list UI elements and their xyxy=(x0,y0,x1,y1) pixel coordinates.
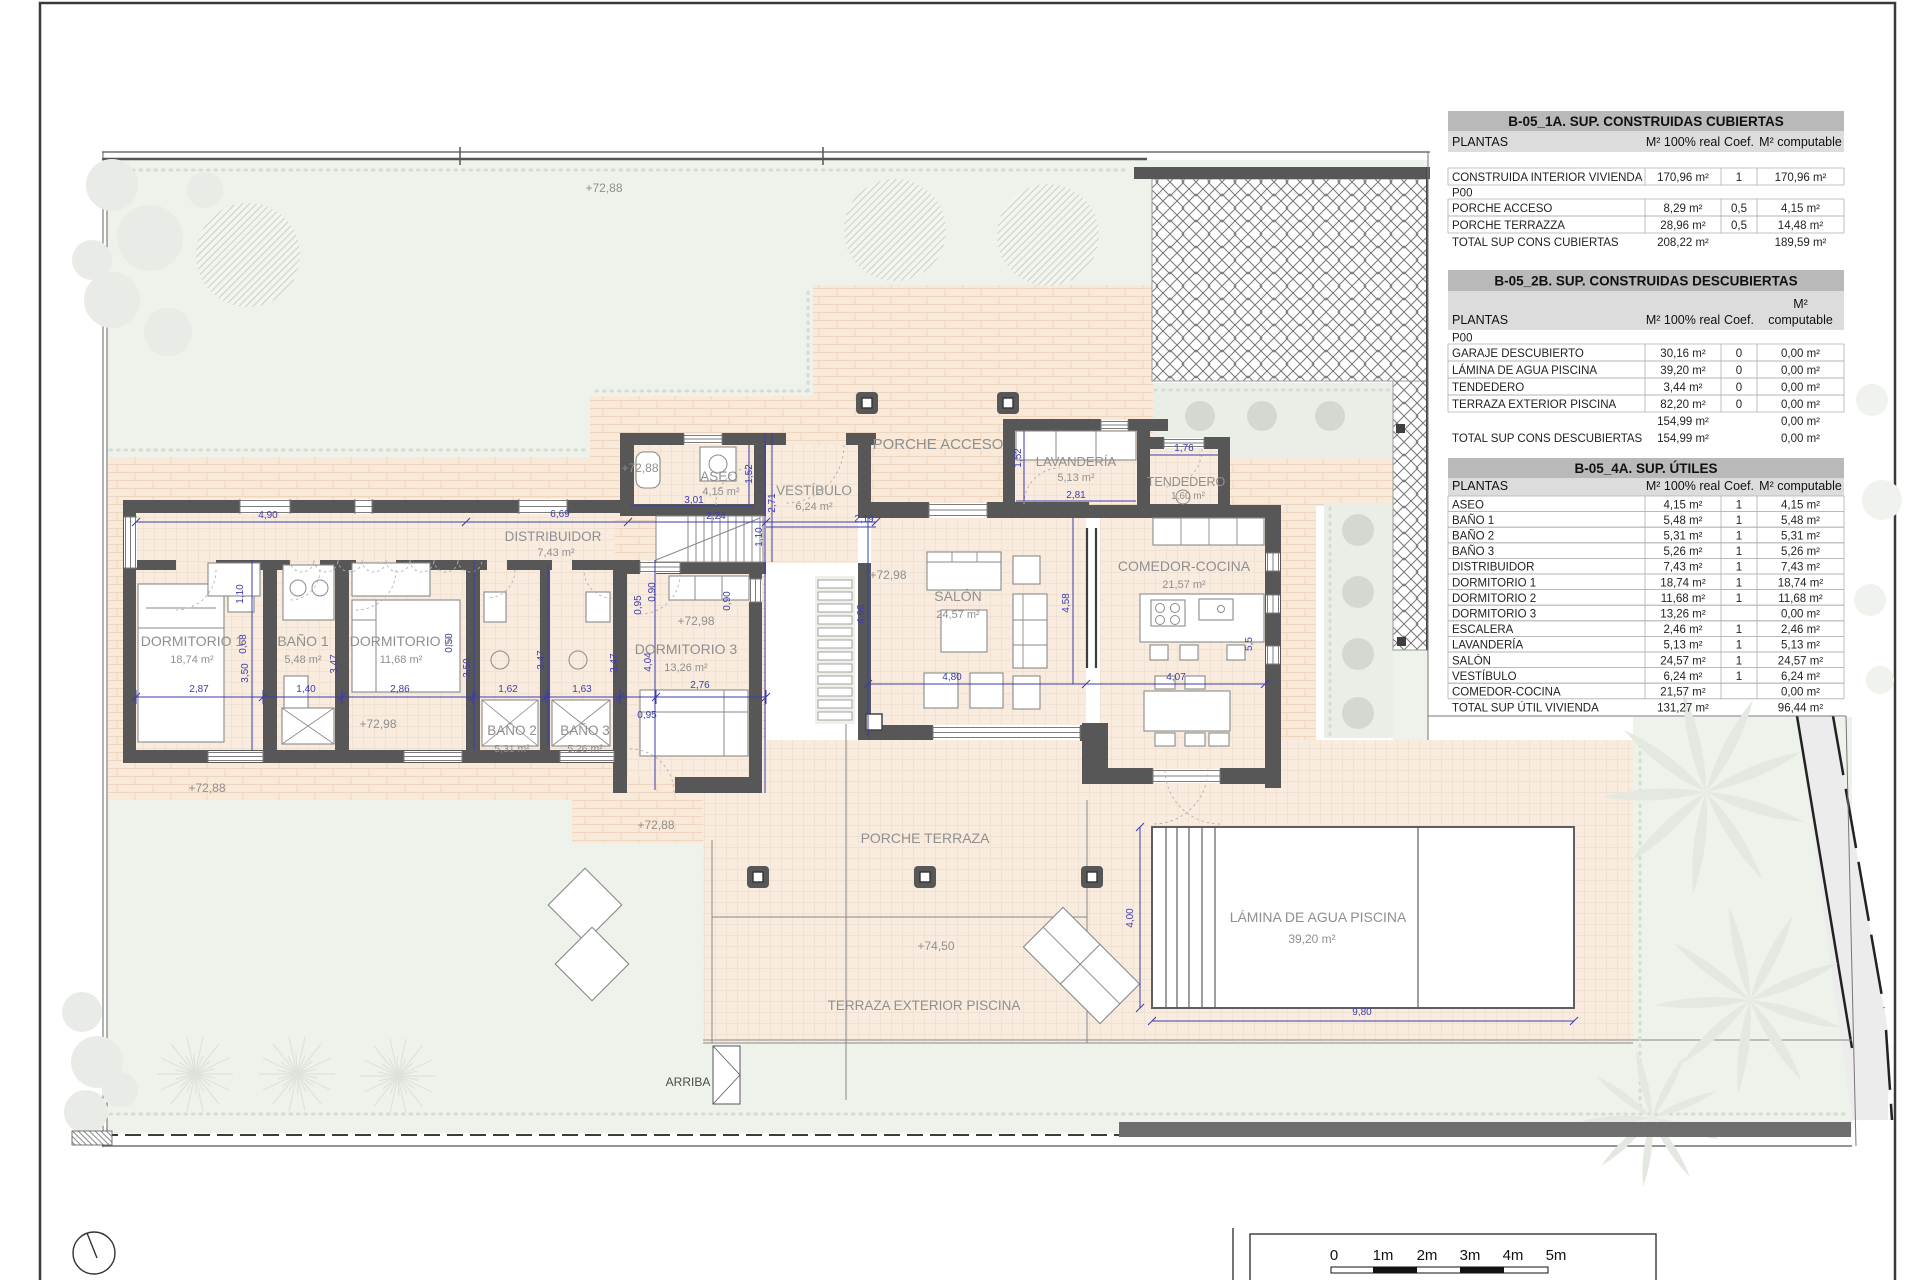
svg-text:1: 1 xyxy=(1736,640,1742,652)
svg-text:0,95: 0,95 xyxy=(637,710,657,721)
svg-text:5,31 m²: 5,31 m² xyxy=(494,743,530,755)
svg-text:0,00 m²: 0,00 m² xyxy=(1781,433,1820,445)
svg-text:170,96 m²: 170,96 m² xyxy=(1775,172,1827,184)
svg-text:0: 0 xyxy=(1736,365,1742,377)
svg-text:4,15 m²: 4,15 m² xyxy=(1664,499,1703,511)
svg-text:96,44 m²: 96,44 m² xyxy=(1778,702,1824,714)
svg-text:ASEO: ASEO xyxy=(1452,499,1484,511)
svg-text:0,95: 0,95 xyxy=(633,595,644,615)
svg-text:3,47: 3,47 xyxy=(536,650,547,670)
svg-text:1: 1 xyxy=(1736,655,1742,667)
svg-text:B-05_1A. SUP. CONSTRUIDAS CUBI: B-05_1A. SUP. CONSTRUIDAS CUBIERTAS xyxy=(1508,114,1784,129)
svg-text:0,00 m²: 0,00 m² xyxy=(1781,365,1820,377)
svg-text:6,24 m²: 6,24 m² xyxy=(1664,671,1703,683)
svg-text:11,68 m²: 11,68 m² xyxy=(1661,593,1706,605)
svg-text:0,00 m²: 0,00 m² xyxy=(1781,416,1820,428)
svg-text:2m: 2m xyxy=(1417,1247,1438,1264)
svg-text:18,74 m²: 18,74 m² xyxy=(170,654,214,666)
svg-text:DISTRIBUIDOR: DISTRIBUIDOR xyxy=(1452,562,1534,574)
svg-text:+72,88: +72,88 xyxy=(637,818,674,832)
svg-text:BAÑO 2: BAÑO 2 xyxy=(1452,530,1494,543)
svg-text:39,20 m²: 39,20 m² xyxy=(1660,365,1706,377)
svg-text:82,20 m²: 82,20 m² xyxy=(1660,399,1706,411)
svg-text:1: 1 xyxy=(1736,671,1742,683)
svg-text:1: 1 xyxy=(1736,172,1742,184)
svg-text:B-05_4A. SUP. ÚTILES: B-05_4A. SUP. ÚTILES xyxy=(1574,461,1717,476)
svg-text:1: 1 xyxy=(1736,515,1742,527)
svg-text:5,13 m²: 5,13 m² xyxy=(1781,640,1820,652)
svg-text:8,29 m²: 8,29 m² xyxy=(1664,203,1703,215)
svg-text:LAVANDERÍA: LAVANDERÍA xyxy=(1036,454,1117,469)
svg-text:4,98: 4,98 xyxy=(856,604,867,624)
svg-text:Coef.: Coef. xyxy=(1724,479,1754,493)
svg-text:1: 1 xyxy=(1736,546,1742,558)
svg-text:4,15 m²: 4,15 m² xyxy=(702,486,740,498)
svg-text:1: 1 xyxy=(1736,562,1742,574)
svg-text:2,87: 2,87 xyxy=(189,684,209,695)
svg-text:5,48 m²: 5,48 m² xyxy=(284,654,322,666)
svg-text:4m: 4m xyxy=(1503,1247,1524,1264)
svg-text:PORCHE ACCESO: PORCHE ACCESO xyxy=(873,436,1004,453)
svg-text:21,57 m²: 21,57 m² xyxy=(1660,687,1706,699)
svg-text:5,31 m²: 5,31 m² xyxy=(1664,531,1703,543)
svg-text:154,99 m²: 154,99 m² xyxy=(1657,416,1709,428)
svg-text:P00: P00 xyxy=(1452,188,1472,200)
svg-text:5,5: 5,5 xyxy=(1244,637,1255,651)
svg-text:2,46 m²: 2,46 m² xyxy=(1664,624,1703,636)
svg-text:1,52: 1,52 xyxy=(1013,448,1024,468)
svg-text:ESCALERA: ESCALERA xyxy=(1452,624,1514,636)
svg-text:0: 0 xyxy=(1736,348,1742,360)
svg-text:TOTAL SUP ÚTIL VIVIENDA: TOTAL SUP ÚTIL VIVIENDA xyxy=(1452,701,1599,714)
svg-text:+72,98: +72,98 xyxy=(359,717,396,731)
svg-text:PLANTAS: PLANTAS xyxy=(1452,135,1508,149)
svg-text:208,22 m²: 208,22 m² xyxy=(1657,237,1709,249)
svg-text:1,76: 1,76 xyxy=(1174,443,1194,454)
svg-text:VESTÍBULO: VESTÍBULO xyxy=(776,483,852,498)
svg-text:M² 100% real: M² 100% real xyxy=(1646,313,1720,327)
svg-text:PORCHE TERRAZZA: PORCHE TERRAZZA xyxy=(1452,220,1565,232)
svg-text:Coef.: Coef. xyxy=(1724,313,1754,327)
svg-text:3,50: 3,50 xyxy=(462,658,473,678)
svg-text:1,63: 1,63 xyxy=(572,684,592,695)
svg-text:2,46 m²: 2,46 m² xyxy=(1781,624,1820,636)
svg-text:5,31 m²: 5,31 m² xyxy=(1781,531,1820,543)
svg-text:4,00: 4,00 xyxy=(1125,908,1136,928)
svg-text:PLANTAS: PLANTAS xyxy=(1452,479,1508,493)
svg-text:3,50: 3,50 xyxy=(240,663,251,683)
svg-text:DISTRIBUIDOR: DISTRIBUIDOR xyxy=(505,529,602,544)
svg-text:0,5: 0,5 xyxy=(1731,203,1747,215)
svg-text:2,81: 2,81 xyxy=(1066,490,1086,501)
svg-text:TERRAZA EXTERIOR PISCINA: TERRAZA EXTERIOR PISCINA xyxy=(1452,399,1617,411)
svg-text:0,00 m²: 0,00 m² xyxy=(1781,609,1820,621)
svg-text:3,44 m²: 3,44 m² xyxy=(1664,382,1703,394)
svg-text:+72,88: +72,88 xyxy=(585,181,622,195)
svg-text:1,60 m²: 1,60 m² xyxy=(1171,491,1206,502)
svg-text:1: 1 xyxy=(1736,499,1742,511)
svg-text:P00: P00 xyxy=(1452,333,1472,345)
svg-text:5,26 m²: 5,26 m² xyxy=(1781,546,1820,558)
svg-text:LÁMINA DE AGUA PISCINA: LÁMINA DE AGUA PISCINA xyxy=(1452,364,1597,377)
svg-text:COMEDOR-COCINA: COMEDOR-COCINA xyxy=(1452,687,1561,699)
svg-text:1m: 1m xyxy=(1373,1247,1394,1264)
svg-text:18,74 m²: 18,74 m² xyxy=(1778,577,1824,589)
svg-text:PORCHE TERRAZA: PORCHE TERRAZA xyxy=(861,830,991,846)
svg-text:TERRAZA EXTERIOR PISCINA: TERRAZA EXTERIOR PISCINA xyxy=(828,998,1021,1013)
svg-text:0,90: 0,90 xyxy=(722,591,733,611)
svg-text:3,47: 3,47 xyxy=(329,654,340,674)
svg-text:M² 100% real: M² 100% real xyxy=(1646,479,1720,493)
svg-text:TENDEDERO: TENDEDERO xyxy=(1147,475,1226,489)
svg-text:DORMITORIO 2: DORMITORIO 2 xyxy=(1452,593,1536,605)
svg-text:13,26 m²: 13,26 m² xyxy=(664,662,708,674)
svg-text:24,57 m²: 24,57 m² xyxy=(936,609,980,621)
svg-text:13,26 m²: 13,26 m² xyxy=(1660,609,1706,621)
svg-text:5,13 m²: 5,13 m² xyxy=(1664,640,1703,652)
svg-text:DORMITORIO 1: DORMITORIO 1 xyxy=(141,633,244,649)
svg-text:BAÑO 1: BAÑO 1 xyxy=(1452,514,1494,527)
svg-text:11,68 m²: 11,68 m² xyxy=(1778,593,1823,605)
svg-text:computable: computable xyxy=(1768,313,1833,327)
svg-text:TOTAL SUP CONS CUBIERTAS: TOTAL SUP CONS CUBIERTAS xyxy=(1452,237,1619,249)
svg-text:+72,88: +72,88 xyxy=(188,781,225,795)
svg-text:BAÑO 2: BAÑO 2 xyxy=(487,723,537,738)
svg-text:14,48 m²: 14,48 m² xyxy=(1778,220,1824,232)
svg-text:CONSTRUIDA INTERIOR VIVIENDA: CONSTRUIDA INTERIOR VIVIENDA xyxy=(1452,172,1643,184)
svg-text:5m: 5m xyxy=(1546,1247,1567,1264)
svg-text:1,10: 1,10 xyxy=(235,584,246,604)
svg-text:6,24 m²: 6,24 m² xyxy=(795,501,833,513)
svg-text:0,00 m²: 0,00 m² xyxy=(1781,687,1820,699)
svg-text:DORMITORIO 2: DORMITORIO 2 xyxy=(350,633,453,649)
svg-text:0: 0 xyxy=(1736,382,1742,394)
svg-text:7,43 m²: 7,43 m² xyxy=(1781,562,1820,574)
svg-text:+72,98: +72,98 xyxy=(869,568,906,582)
svg-text:GARAJE DESCUBIERTO: GARAJE DESCUBIERTO xyxy=(1452,348,1584,360)
svg-text:28,96 m²: 28,96 m² xyxy=(1660,220,1706,232)
svg-text:BAÑO 3: BAÑO 3 xyxy=(560,723,610,738)
svg-text:M² computable: M² computable xyxy=(1759,135,1842,149)
svg-text:1: 1 xyxy=(1736,624,1742,636)
svg-text:4,90: 4,90 xyxy=(258,510,278,521)
svg-text:4,80: 4,80 xyxy=(942,672,962,683)
svg-text:0,90: 0,90 xyxy=(647,582,658,602)
svg-text:6,69: 6,69 xyxy=(550,509,570,520)
svg-text:Coef.: Coef. xyxy=(1724,135,1754,149)
svg-text:TOTAL SUP CONS DESCUBIERTAS: TOTAL SUP CONS DESCUBIERTAS xyxy=(1452,433,1643,445)
svg-text:VESTÍBULO: VESTÍBULO xyxy=(1452,670,1517,683)
svg-text:1,52: 1,52 xyxy=(744,464,755,484)
svg-text:11,68 m²: 11,68 m² xyxy=(380,654,423,666)
svg-text:0,5: 0,5 xyxy=(1731,220,1747,232)
svg-text:30,16 m²: 30,16 m² xyxy=(1660,348,1706,360)
svg-text:3m: 3m xyxy=(1460,1247,1481,1264)
svg-text:2,24: 2,24 xyxy=(706,511,726,522)
svg-text:5,13 m²: 5,13 m² xyxy=(1057,472,1095,484)
svg-text:B-05_2B. SUP. CONSTRUIDAS DESC: B-05_2B. SUP. CONSTRUIDAS DESCUBIERTAS xyxy=(1494,274,1797,289)
svg-text:1: 1 xyxy=(1736,593,1742,605)
svg-text:0,00 m²: 0,00 m² xyxy=(1781,348,1820,360)
svg-text:LÁMINA DE AGUA PISCINA: LÁMINA DE AGUA PISCINA xyxy=(1230,909,1407,925)
svg-text:0,00 m²: 0,00 m² xyxy=(1781,382,1820,394)
svg-text:5,26 m²: 5,26 m² xyxy=(1664,546,1703,558)
svg-text:4,15 m²: 4,15 m² xyxy=(1781,203,1820,215)
svg-text:4,15 m²: 4,15 m² xyxy=(1781,499,1820,511)
svg-text:BAÑO 3: BAÑO 3 xyxy=(1452,545,1494,558)
svg-text:9,80: 9,80 xyxy=(1352,1007,1372,1018)
svg-text:+72,88: +72,88 xyxy=(621,461,658,475)
svg-text:DORMITORIO 3: DORMITORIO 3 xyxy=(1452,609,1536,621)
svg-text:DORMITORIO 1: DORMITORIO 1 xyxy=(1452,577,1536,589)
svg-text:7,43 m²: 7,43 m² xyxy=(537,547,575,559)
svg-text:189,59 m²: 189,59 m² xyxy=(1775,237,1827,249)
svg-text:18,74 m²: 18,74 m² xyxy=(1660,577,1706,589)
svg-text:ARRIBA: ARRIBA xyxy=(666,1075,711,1089)
svg-text:COMEDOR-COCINA: COMEDOR-COCINA xyxy=(1118,558,1251,574)
svg-text:M²: M² xyxy=(1793,297,1808,311)
svg-text:21,57 m²: 21,57 m² xyxy=(1162,579,1206,591)
svg-text:BAÑO 1: BAÑO 1 xyxy=(277,633,329,649)
svg-text:7,43 m²: 7,43 m² xyxy=(1664,562,1703,574)
svg-text:170,96 m²: 170,96 m² xyxy=(1657,172,1709,184)
svg-text:TENDEDERO: TENDEDERO xyxy=(1452,382,1524,394)
svg-text:5,26 m²: 5,26 m² xyxy=(567,743,603,755)
svg-text:+72,98: +72,98 xyxy=(677,614,714,628)
svg-text:5,48 m²: 5,48 m² xyxy=(1781,515,1820,527)
svg-text:DORMITORIO 3: DORMITORIO 3 xyxy=(635,641,738,657)
svg-text:1: 1 xyxy=(1736,531,1742,543)
svg-text:24,57 m²: 24,57 m² xyxy=(1660,655,1706,667)
svg-text:0: 0 xyxy=(1330,1247,1338,1264)
svg-text:4,58: 4,58 xyxy=(1061,593,1072,613)
svg-text:PLANTAS: PLANTAS xyxy=(1452,313,1508,327)
svg-text:SALÓN: SALÓN xyxy=(1452,654,1491,667)
svg-text:SALÓN: SALÓN xyxy=(934,588,981,604)
svg-text:2,86: 2,86 xyxy=(390,684,410,695)
svg-text:+74,50: +74,50 xyxy=(917,939,954,953)
svg-text:PORCHE ACCESO: PORCHE ACCESO xyxy=(1452,203,1552,215)
svg-text:1: 1 xyxy=(1736,577,1742,589)
svg-text:ASEO: ASEO xyxy=(700,469,738,484)
svg-text:1,40: 1,40 xyxy=(296,684,316,695)
svg-text:0,00 m²: 0,00 m² xyxy=(1781,399,1820,411)
svg-text:1,10: 1,10 xyxy=(754,527,765,547)
svg-text:6,24 m²: 6,24 m² xyxy=(1781,671,1820,683)
svg-text:1,62: 1,62 xyxy=(498,684,518,695)
svg-text:4,07: 4,07 xyxy=(1166,672,1186,683)
svg-text:M² computable: M² computable xyxy=(1759,479,1842,493)
svg-text:M² 100% real: M² 100% real xyxy=(1646,135,1720,149)
svg-text:39,20 m²: 39,20 m² xyxy=(1288,932,1335,946)
svg-text:24,57 m²: 24,57 m² xyxy=(1778,655,1824,667)
svg-text:2,19: 2,19 xyxy=(854,514,874,525)
svg-text:LAVANDERÍA: LAVANDERÍA xyxy=(1452,639,1523,652)
svg-text:131,27 m²: 131,27 m² xyxy=(1657,702,1709,714)
svg-text:3,47: 3,47 xyxy=(609,653,620,673)
svg-text:2,76: 2,76 xyxy=(690,680,710,691)
svg-text:154,99 m²: 154,99 m² xyxy=(1657,433,1709,445)
svg-text:3,01: 3,01 xyxy=(684,495,704,506)
svg-text:0: 0 xyxy=(1736,399,1742,411)
svg-text:5,48 m²: 5,48 m² xyxy=(1664,515,1703,527)
